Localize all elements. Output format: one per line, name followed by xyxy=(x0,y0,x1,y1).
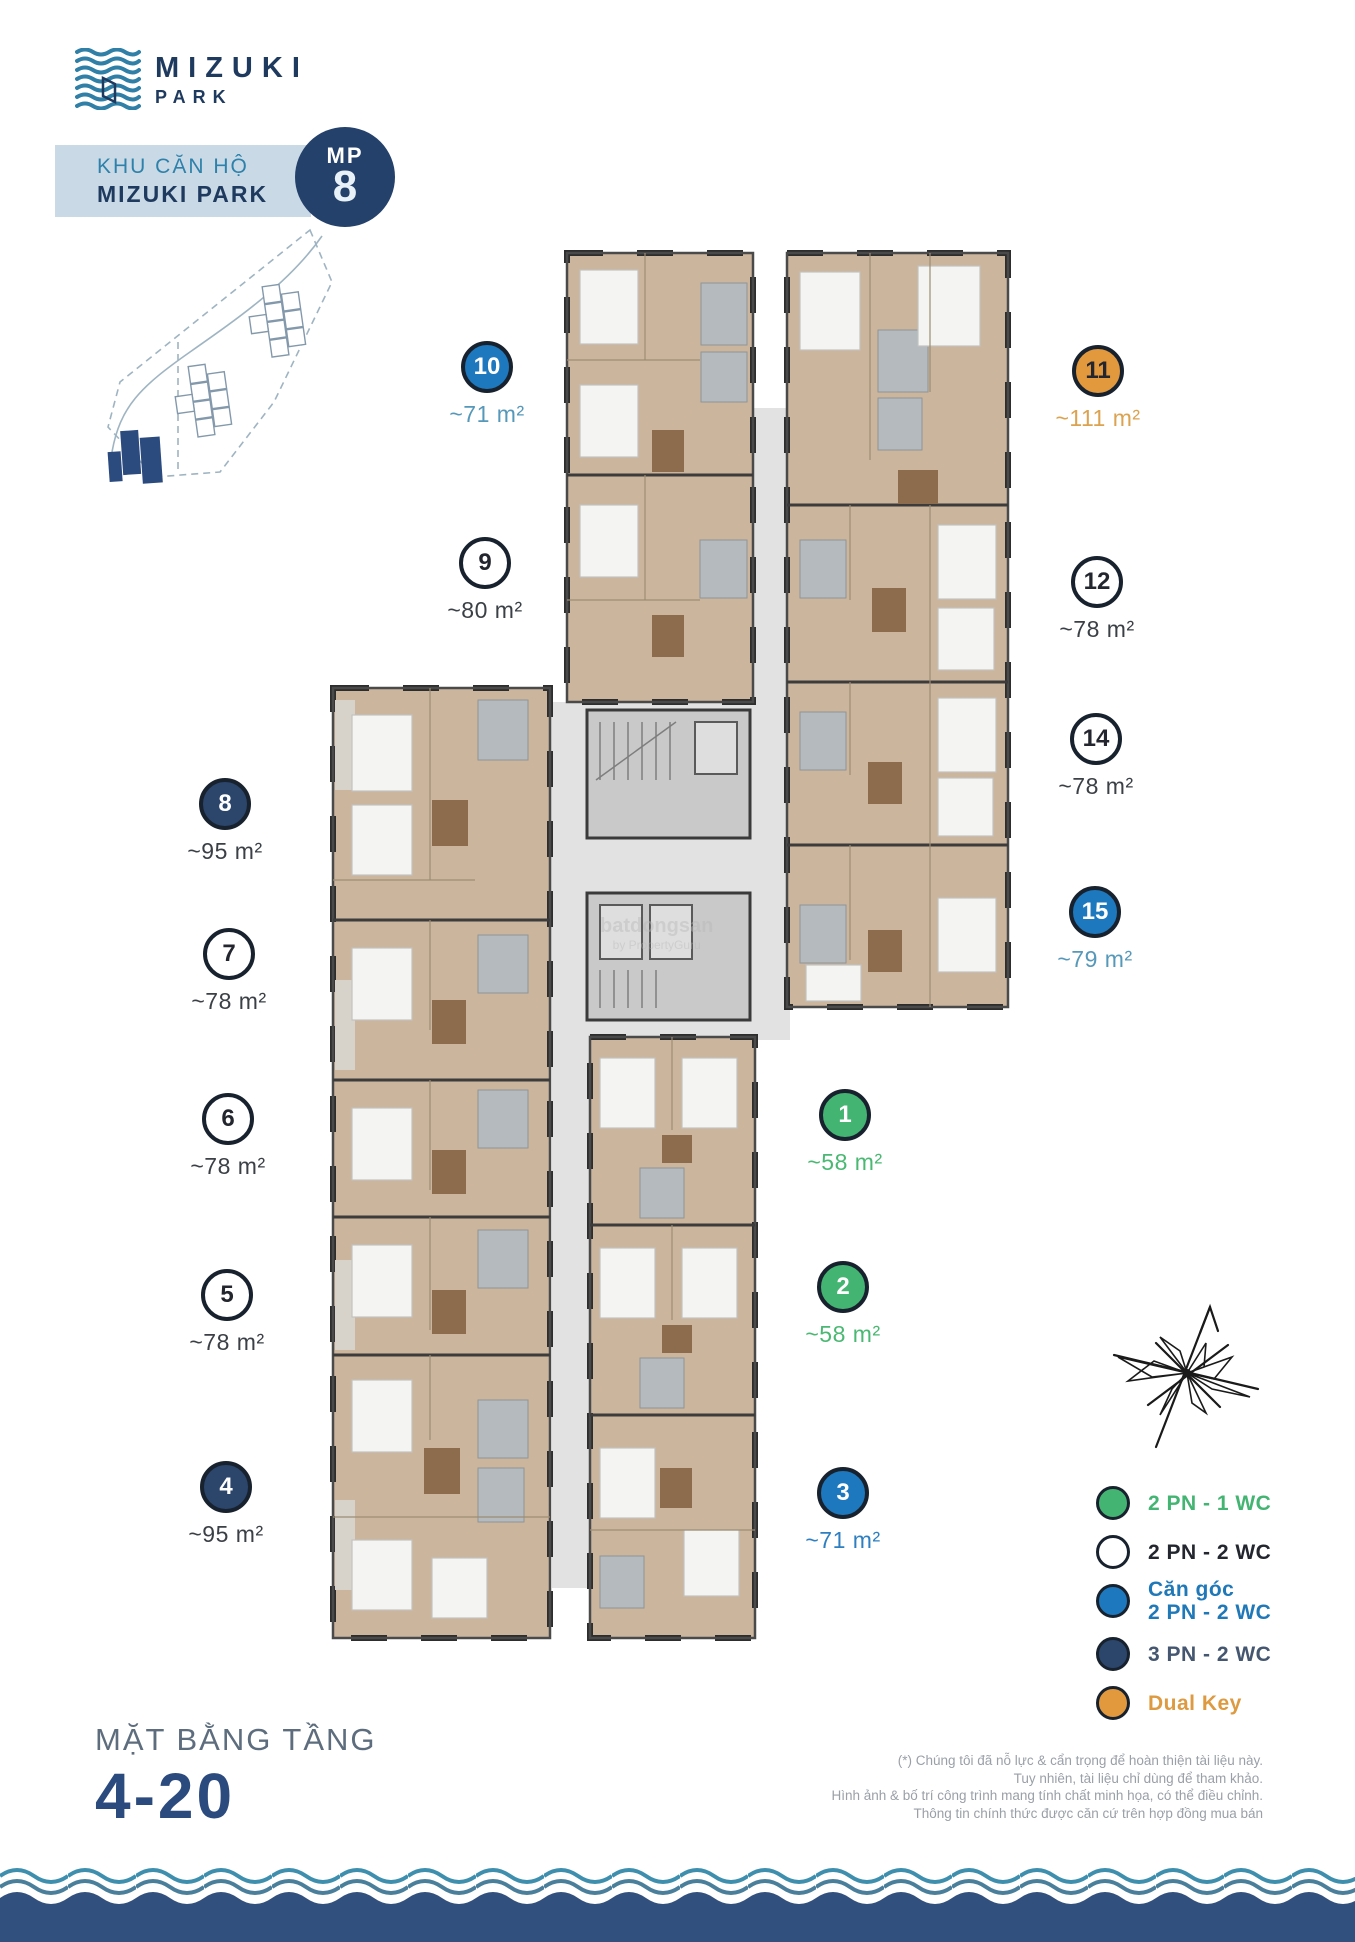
unit-area: ~78 m² xyxy=(162,1329,292,1356)
unit-number: 7 xyxy=(203,928,255,980)
disclaimer-line4: Thông tin chính thức được căn cứ trên hợ… xyxy=(831,1805,1263,1823)
unit-badge-5: 5 ~78 m² xyxy=(162,1269,292,1356)
unit-area: ~95 m² xyxy=(160,838,290,865)
unit-number: 6 xyxy=(202,1093,254,1145)
unit-number: 3 xyxy=(817,1467,869,1519)
watermark: batdongsan by PropertyGuru xyxy=(600,915,713,952)
unit-badge-2: 2 ~58 m² xyxy=(778,1261,908,1348)
unit-badge-8: 8 ~95 m² xyxy=(160,778,290,865)
unit-area: ~78 m² xyxy=(1032,616,1162,643)
legend-label: 2 PN - 1 WC xyxy=(1148,1492,1271,1515)
unit-badge-4: 4 ~95 m² xyxy=(161,1461,291,1548)
unit-badge-9: 9 ~80 m² xyxy=(420,537,550,624)
legend-swatch-navy xyxy=(1096,1637,1130,1671)
unit-number: 15 xyxy=(1069,886,1121,938)
unit-area: ~58 m² xyxy=(778,1321,908,1348)
disclaimer-line1: (*) Chúng tôi đã nỗ lực & cẩn trọng để h… xyxy=(831,1752,1263,1770)
disclaimer-line3: Hình ảnh & bố trí công trình mang tính c… xyxy=(831,1787,1263,1805)
unit-number: 10 xyxy=(461,341,513,393)
unit-badge-15: 15 ~79 m² xyxy=(1030,886,1160,973)
unit-area: ~78 m² xyxy=(164,988,294,1015)
watermark-line1: batdongsan xyxy=(600,915,713,938)
unit-number: 11 xyxy=(1072,345,1124,397)
legend-label-line2: 2 PN - 2 WC xyxy=(1148,1601,1271,1624)
unit-badge-11: 11 ~111 m² xyxy=(1033,345,1163,432)
legend-swatch-green xyxy=(1096,1486,1130,1520)
unit-badge-1: 1 ~58 m² xyxy=(780,1089,910,1176)
unit-area: ~95 m² xyxy=(161,1521,291,1548)
disclaimer-line2: Tuy nhiên, tài liệu chỉ dùng để tham khả… xyxy=(831,1770,1263,1788)
legend-swatch-blue xyxy=(1096,1584,1130,1618)
unit-area: ~80 m² xyxy=(420,597,550,624)
legend-item-3pn-2wc: 3 PN - 2 WC xyxy=(1096,1637,1271,1671)
unit-number: 8 xyxy=(199,778,251,830)
floor-title-label: MẶT BẰNG TẦNG xyxy=(95,1722,377,1758)
unit-badge-14: 14 ~78 m² xyxy=(1031,713,1161,800)
unit-area: ~58 m² xyxy=(780,1149,910,1176)
disclaimer: (*) Chúng tôi đã nỗ lực & cẩn trọng để h… xyxy=(831,1752,1263,1822)
unit-number: 12 xyxy=(1071,556,1123,608)
unit-number: 9 xyxy=(459,537,511,589)
unit-area: ~71 m² xyxy=(422,401,552,428)
unit-area: ~79 m² xyxy=(1030,946,1160,973)
legend-label: 3 PN - 2 WC xyxy=(1148,1643,1271,1666)
unit-badge-12: 12 ~78 m² xyxy=(1032,556,1162,643)
floorplan-poster: MIZUKI PARK KHU CĂN HỘ MIZUKI PARK MP 8 xyxy=(0,0,1355,1942)
legend-label-line1: Căn góc xyxy=(1148,1578,1271,1601)
legend-item-corner-2pn-2wc: Căn góc 2 PN - 2 WC xyxy=(1096,1578,1271,1624)
legend-item-2pn-2wc: 2 PN - 2 WC xyxy=(1096,1535,1271,1569)
unit-number: 5 xyxy=(201,1269,253,1321)
unit-area: ~78 m² xyxy=(163,1153,293,1180)
unit-number: 14 xyxy=(1070,713,1122,765)
watermark-line2: by PropertyGuru xyxy=(600,938,713,952)
unit-number: 4 xyxy=(200,1461,252,1513)
floor-title: MẶT BẰNG TẦNG 4-20 xyxy=(95,1722,377,1828)
unit-badge-6: 6 ~78 m² xyxy=(163,1093,293,1180)
legend-item-dual-key: Dual Key xyxy=(1096,1686,1242,1720)
unit-badge-10: 10 ~71 m² xyxy=(422,341,552,428)
legend-label: Căn góc 2 PN - 2 WC xyxy=(1148,1578,1271,1624)
unit-area: ~71 m² xyxy=(778,1527,908,1554)
legend-swatch-white xyxy=(1096,1535,1130,1569)
unit-badge-7: 7 ~78 m² xyxy=(164,928,294,1015)
legend-label: 2 PN - 2 WC xyxy=(1148,1541,1271,1564)
unit-area: ~111 m² xyxy=(1033,405,1163,432)
unit-area: ~78 m² xyxy=(1031,773,1161,800)
floor-title-range: 4-20 xyxy=(95,1764,377,1828)
unit-badge-3: 3 ~71 m² xyxy=(778,1467,908,1554)
unit-number: 2 xyxy=(817,1261,869,1313)
unit-number: 1 xyxy=(819,1089,871,1141)
legend-label: Dual Key xyxy=(1148,1692,1242,1715)
legend-swatch-orange xyxy=(1096,1686,1130,1720)
legend-item-2pn-1wc: 2 PN - 1 WC xyxy=(1096,1486,1271,1520)
